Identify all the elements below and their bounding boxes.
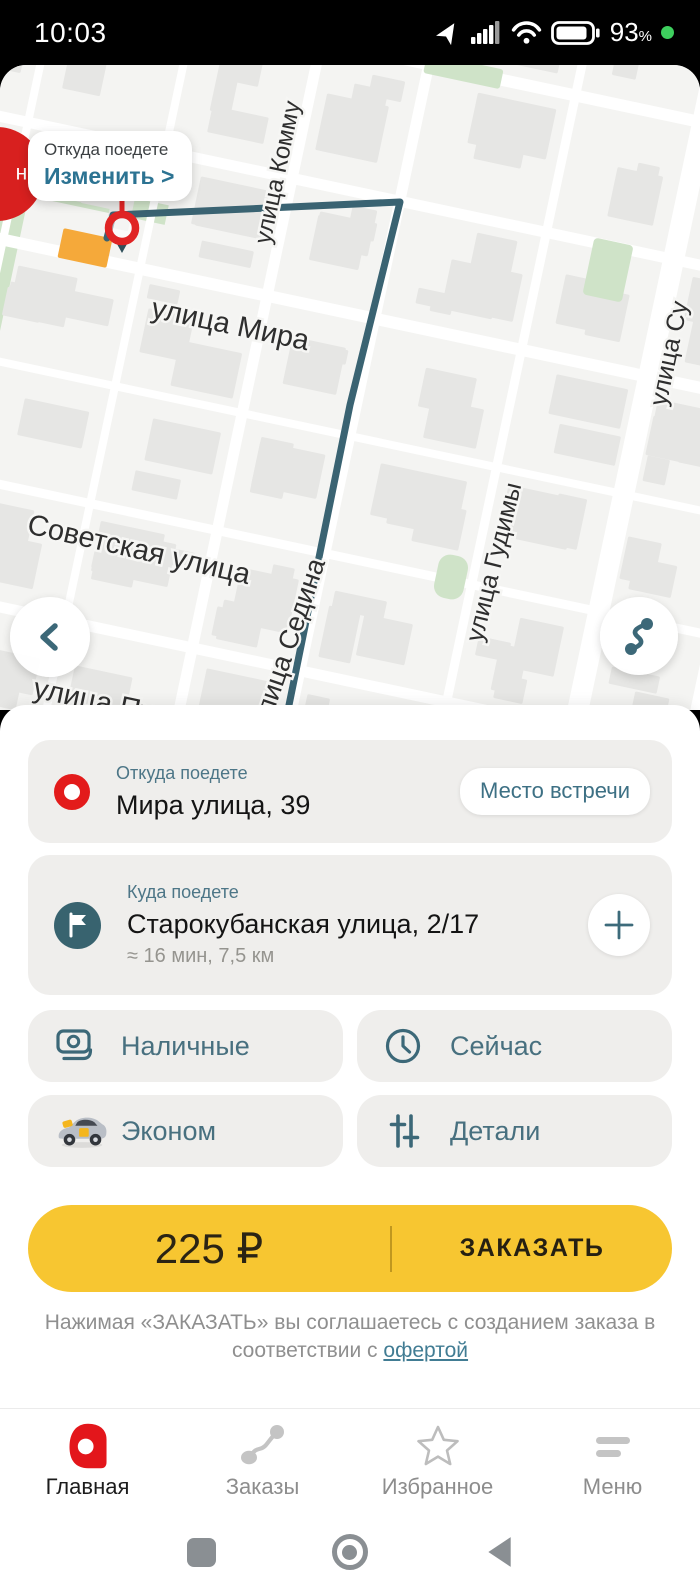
- tab-orders[interactable]: Заказы: [175, 1409, 350, 1510]
- tab-menu[interactable]: Меню: [525, 1409, 700, 1510]
- trip-eta: ≈ 16 мин, 7,5 км: [127, 945, 479, 968]
- phone-screen: 10:03 93%: [0, 0, 700, 1594]
- bottom-tab-bar: Главная Заказы Избранное: [0, 1408, 700, 1510]
- details-button[interactable]: Детали: [357, 1095, 672, 1167]
- home-button[interactable]: [332, 1534, 368, 1570]
- departure-time-label: Сейчас: [450, 1031, 542, 1062]
- order-button-label: ЗАКАЗАТЬ: [392, 1234, 672, 1263]
- destination-label: Куда поедете: [127, 882, 479, 903]
- economy-car-icon: [55, 1111, 109, 1151]
- map-view[interactable]: улица Комму улица Мира Советская улица у…: [0, 65, 700, 710]
- battery-percent: 93%: [610, 17, 652, 48]
- plus-icon: [604, 910, 634, 940]
- destination-field[interactable]: Куда поедете Старокубанская улица, 2/17 …: [28, 855, 672, 995]
- tab-home-label: Главная: [46, 1474, 130, 1500]
- offer-link[interactable]: офертой: [383, 1339, 468, 1362]
- cellular-signal-icon: [470, 19, 502, 46]
- route-overview-button[interactable]: [600, 597, 678, 675]
- route-icon: [618, 615, 660, 657]
- android-nav-bar: [0, 1510, 700, 1594]
- android-back-button[interactable]: [484, 1535, 514, 1569]
- app-logo-icon: [65, 1421, 111, 1471]
- pickup-field[interactable]: Откуда поедете Мира улица, 39 Место встр…: [28, 740, 672, 843]
- order-button[interactable]: 225 ₽ ЗАКАЗАТЬ: [28, 1205, 672, 1292]
- offer-disclaimer: Нажимая «ЗАКАЗАТЬ» вы соглашаетесь с соз…: [30, 1309, 670, 1366]
- sliders-icon: [384, 1111, 424, 1151]
- chevron-left-icon: [33, 620, 67, 654]
- tab-home[interactable]: Главная: [0, 1409, 175, 1510]
- pickup-tooltip[interactable]: Откуда поедете Изменить >: [28, 131, 192, 201]
- details-label: Детали: [450, 1116, 540, 1147]
- wifi-icon: [511, 20, 542, 45]
- back-button[interactable]: [10, 597, 90, 677]
- pickup-point-icon: [54, 774, 90, 810]
- trip-price: 225 ₽: [28, 1224, 390, 1273]
- tab-favorites-label: Избранное: [382, 1474, 494, 1500]
- tariff-button[interactable]: Эконом: [28, 1095, 343, 1167]
- disclaimer-line2: соответствии с: [232, 1339, 378, 1362]
- clock-icon: [384, 1027, 422, 1065]
- pickup-change-link[interactable]: Изменить >: [44, 163, 174, 190]
- recents-button[interactable]: [187, 1538, 216, 1567]
- meeting-point-button[interactable]: Место встречи: [460, 768, 650, 815]
- tab-menu-label: Меню: [583, 1474, 642, 1500]
- payment-method-button[interactable]: Наличные: [28, 1010, 343, 1082]
- pickup-label: Откуда поедете: [116, 763, 310, 784]
- menu-icon: [593, 1430, 633, 1462]
- orders-route-icon: [239, 1424, 287, 1468]
- tab-orders-label: Заказы: [226, 1474, 300, 1500]
- destination-address: Старокубанская улица, 2/17: [127, 909, 479, 940]
- tariff-label: Эконом: [121, 1116, 216, 1147]
- status-green-dot: [661, 26, 674, 39]
- clock: 10:03: [34, 17, 107, 49]
- cash-icon: [55, 1028, 96, 1064]
- star-icon: [415, 1423, 461, 1469]
- add-stop-button[interactable]: [588, 894, 650, 956]
- payment-method-label: Наличные: [121, 1031, 250, 1062]
- disclaimer-line1: Нажимая «ЗАКАЗАТЬ» вы соглашаетесь с соз…: [45, 1311, 656, 1334]
- tab-favorites[interactable]: Избранное: [350, 1409, 525, 1510]
- location-arrow-icon: [436, 20, 461, 45]
- battery-icon: [551, 19, 601, 47]
- pickup-address: Мира улица, 39: [116, 790, 310, 821]
- pickup-tooltip-title: Откуда поедете: [44, 140, 174, 160]
- destination-flag-icon: [54, 902, 101, 949]
- departure-time-button[interactable]: Сейчас: [357, 1010, 672, 1082]
- status-bar: 10:03 93%: [0, 0, 700, 65]
